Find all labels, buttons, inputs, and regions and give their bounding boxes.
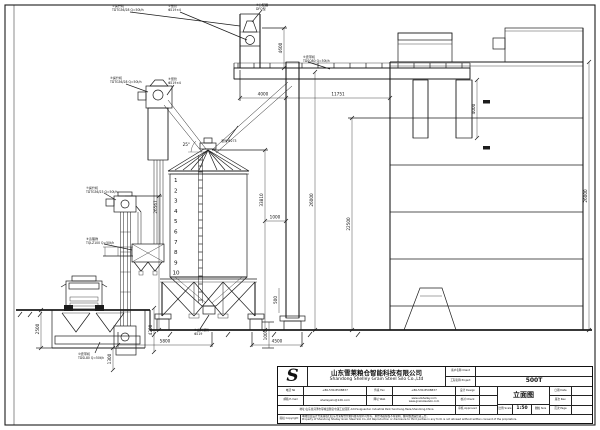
silo-ladder (199, 155, 203, 303)
check-value (480, 396, 497, 404)
client-label: 客户名称 Client (446, 367, 475, 377)
fax-label: 传真 Fax (367, 387, 393, 395)
ring-8: 8 (174, 250, 178, 256)
ring-9: 9 (174, 260, 178, 266)
penthouse (398, 33, 452, 62)
head-tower (240, 14, 260, 68)
date-label: 日期 Date (550, 387, 572, 395)
silo-roof (168, 138, 249, 174)
drawing-sheet: 1 2 3 4 5 6 7 8 9 10 (0, 0, 600, 430)
silo-ring-numbers: 1 2 3 4 5 6 7 8 9 10 (173, 178, 181, 277)
svg-text:TDSQ80 Q=50t/h: TDSQ80 Q=50t/h (302, 59, 330, 63)
building-floors (390, 100, 583, 306)
ring-3: 3 (174, 199, 178, 205)
email-label: 邮箱 E-mail (278, 396, 304, 405)
dim-4000-top-left: 4000 (258, 92, 269, 97)
ground-line (16, 310, 592, 337)
truck (61, 276, 107, 311)
silo-supports (155, 279, 264, 330)
project-label: 工程名称 Project (446, 377, 475, 386)
dim-1000-gap: 1000 (270, 215, 281, 220)
conveyor-bridge (212, 63, 470, 153)
svg-text:Φ219: Φ219 (194, 332, 202, 336)
page-value (572, 406, 592, 414)
copyright-label: 版权 Copyright (278, 415, 301, 423)
svg-text:TDTG36/28 Q=50t/h: TDTG36/28 Q=50t/h (109, 80, 142, 84)
scale-value: 1:50 (513, 405, 532, 414)
rev-value (572, 396, 592, 404)
tel-value: +86-530-8508837 (304, 387, 367, 395)
company-name: 山东雪莱粮仓智能科技有限公司 Shandong Shelley Grain St… (308, 367, 446, 386)
dim-1000-pier: 1000 (263, 329, 268, 340)
dim-26000-building: 26000 (583, 189, 588, 203)
dim-500: 500 (273, 296, 278, 304)
elevator-1 (106, 192, 141, 348)
date-value (572, 387, 592, 395)
drawing-title: 立面图 (498, 387, 549, 405)
building-columns (413, 80, 472, 138)
svg-text:TDSL80 Q=50t/h: TDSL80 Q=50t/h (77, 356, 104, 360)
building-door (404, 288, 456, 330)
ring-7: 7 (174, 240, 178, 246)
check-label: 校对 Check (456, 396, 480, 404)
design-label: 设计 Design (456, 387, 480, 395)
dim-4000-column: 4000 (471, 103, 476, 114)
ring-4: 4 (174, 209, 178, 215)
ring-10: 10 (173, 271, 181, 277)
ring-1: 1 (174, 178, 178, 184)
dim-26000-tower: 26000 (309, 193, 314, 207)
support-tower (280, 62, 305, 330)
company-logo: S (278, 367, 308, 386)
dim-4500: 4500 (272, 339, 283, 344)
web-value: www.sdshelley.com www.grainsteelsilo.com (393, 396, 455, 405)
dim-22500: 22500 (346, 217, 351, 231)
notice-en: Property of Shandong Shelley Grain Steel… (302, 419, 517, 422)
elevator-2 (138, 80, 206, 244)
client-value (476, 367, 592, 377)
dim-roof-angle: 25° (183, 142, 190, 147)
tel-label: 电话 Tel (278, 387, 304, 395)
size-label: 图幅 Size (532, 405, 549, 414)
title-block: S 山东雪莱粮仓智能科技有限公司 Shandong Shelley Grain … (277, 366, 593, 424)
dim-33810: 33810 (259, 193, 264, 207)
ring-6: 6 (174, 230, 178, 236)
scale-label: 比例 Scale (498, 405, 513, 414)
work-platform (103, 247, 133, 256)
dim-4600: 4600 (278, 42, 283, 53)
copyright-notice: 本图纸及设计方案版权归山东雪莱粮仓智能科技有限公司所有，未经书面授权不得复制、翻… (301, 415, 592, 423)
dim-11751: 11751 (331, 92, 345, 97)
rev-label: 版次 Rev. (550, 396, 572, 404)
address: 地址:山东省菏泽市郓城县随官屯镇工业园区 Add:Suiguantun Indu… (278, 406, 455, 414)
dim-4200: 4200 (148, 324, 153, 335)
dim-2500: 2500 (35, 323, 40, 334)
email-value: shelleysilo@126.com (304, 396, 367, 405)
svg-text:TQLZ100 Q=50t/h: TQLZ100 Q=50t/h (85, 241, 114, 245)
svg-text:DFQ型: DFQ型 (256, 6, 266, 11)
dim-1300: 1300 (107, 353, 112, 364)
svg-text:Φ219×4: Φ219×4 (168, 81, 181, 85)
callout-11: 溜管 Φ273 (221, 138, 237, 143)
silo-wall (170, 174, 247, 277)
ring-2: 2 (174, 188, 178, 194)
roof-tower-section (493, 28, 583, 62)
svg-text:TDTG36/23 Q=50t/h: TDTG36/23 Q=50t/h (85, 190, 118, 194)
dim-26567: 26567 (153, 200, 158, 214)
silo: 1 2 3 4 5 6 7 8 9 10 (155, 138, 264, 330)
page-label: 页次 Page (550, 406, 572, 414)
building (390, 28, 583, 330)
dim-5800: 5800 (160, 339, 171, 344)
design-value (480, 387, 497, 395)
company-name-en: Shandong Shelley Grain Steel Silo Co.,Lt… (330, 378, 424, 383)
approve-label: 审核 Approved (456, 406, 480, 414)
ring-5: 5 (174, 219, 178, 225)
approve-value (480, 406, 497, 414)
svg-text:Φ219×4: Φ219×4 (168, 8, 181, 12)
svg-text:TDTG36/28 Q=50t/h: TDTG36/28 Q=50t/h (111, 8, 144, 12)
project-value: 500T (476, 377, 592, 386)
web-label: 网址 Web (367, 396, 393, 405)
fax-value: +86-530-8508837 (393, 387, 455, 395)
